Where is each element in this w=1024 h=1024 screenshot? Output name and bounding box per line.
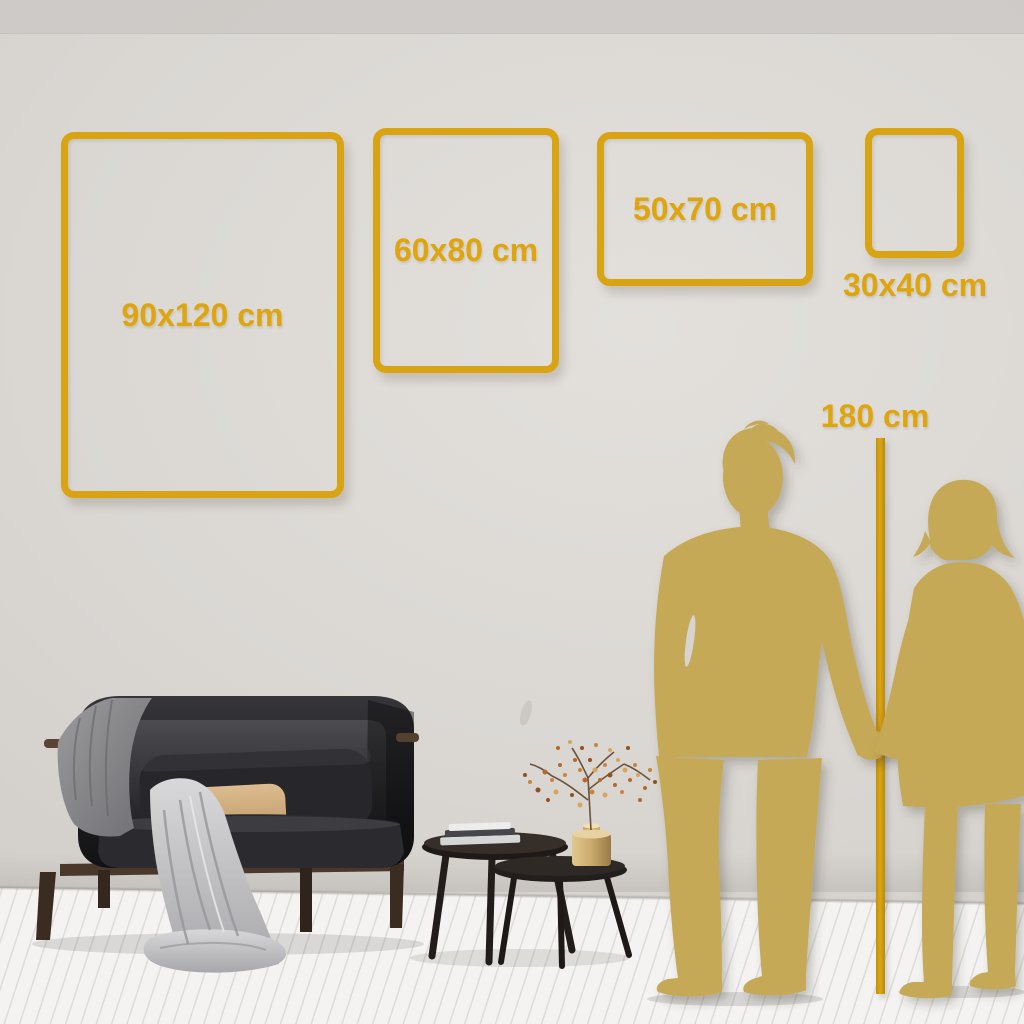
size-frame-50x70: 50x70 cm bbox=[597, 132, 813, 286]
height-marker-line bbox=[876, 438, 885, 994]
size-label-90x120: 90x120 cm bbox=[122, 297, 284, 334]
size-label-30x40: 30x40 cm bbox=[820, 267, 1010, 304]
wall-ceiling-seam bbox=[0, 0, 1024, 34]
size-label-50x70: 50x70 cm bbox=[633, 191, 777, 228]
size-frame-60x80: 60x80 cm bbox=[373, 128, 559, 373]
size-frame-30x40 bbox=[865, 128, 964, 258]
size-frame-90x120: 90x120 cm bbox=[61, 132, 344, 498]
wall-base-shadow bbox=[0, 852, 1024, 892]
poster-size-guide: 90x120 cm 60x80 cm 50x70 cm 30x40 cm 180… bbox=[0, 0, 1024, 1024]
size-label-60x80: 60x80 cm bbox=[394, 232, 538, 269]
height-marker-label: 180 cm bbox=[785, 398, 965, 435]
